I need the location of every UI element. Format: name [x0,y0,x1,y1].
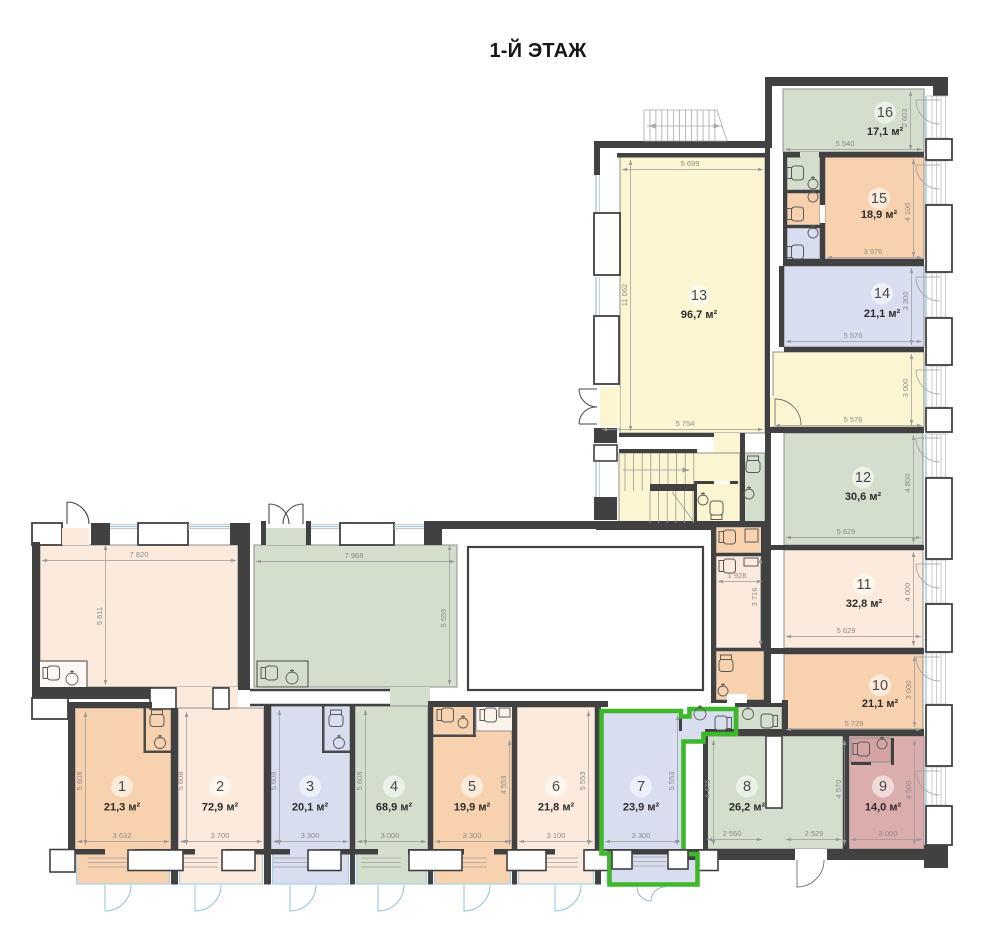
svg-text:1 928: 1 928 [728,571,747,580]
svg-text:3 300: 3 300 [632,831,651,840]
svg-text:5: 5 [468,779,476,795]
svg-text:18,9 м²: 18,9 м² [861,209,898,221]
svg-text:5 540: 5 540 [836,139,855,148]
svg-text:3 000: 3 000 [904,681,913,700]
svg-text:3 976: 3 976 [864,247,883,256]
svg-text:2: 2 [216,779,224,795]
svg-text:8: 8 [743,779,751,795]
svg-text:16: 16 [877,105,893,121]
svg-text:3 716: 3 716 [750,588,759,607]
svg-text:3 632: 3 632 [113,831,132,840]
svg-text:26,2 м²: 26,2 м² [729,802,766,814]
svg-text:5 629: 5 629 [837,626,856,635]
svg-text:4 500: 4 500 [904,781,913,800]
svg-text:7 820: 7 820 [130,550,149,559]
svg-text:3 000: 3 000 [901,379,910,398]
svg-text:5 608: 5 608 [269,772,278,791]
svg-text:4 475: 4 475 [703,780,712,799]
svg-text:11 062: 11 062 [620,284,629,306]
svg-text:14,0 м²: 14,0 м² [865,802,902,814]
svg-text:2 529: 2 529 [805,829,824,838]
svg-text:3 300: 3 300 [901,292,910,311]
svg-text:3 300: 3 300 [463,831,482,840]
svg-text:4 800: 4 800 [903,474,912,493]
svg-text:4 553: 4 553 [499,776,508,795]
svg-text:5 611: 5 611 [95,607,104,625]
svg-text:21,1 м²: 21,1 м² [864,308,901,320]
svg-text:1-Й ЭТАЖ: 1-Й ЭТАЖ [489,38,587,62]
svg-text:6: 6 [552,779,560,795]
svg-text:5 754: 5 754 [676,419,695,428]
svg-text:20,1 м²: 20,1 м² [292,802,329,814]
svg-text:30,6 м²: 30,6 м² [845,491,882,503]
svg-text:1: 1 [118,779,126,795]
svg-text:68,9 м²: 68,9 м² [376,802,413,814]
svg-text:21,8 м²: 21,8 м² [538,802,575,814]
svg-text:96,7 м²: 96,7 м² [681,309,718,321]
svg-text:5 608: 5 608 [75,772,84,791]
svg-text:5 576: 5 576 [844,331,863,340]
svg-text:9: 9 [879,779,887,795]
svg-text:2 603: 2 603 [900,109,909,128]
svg-text:17,1 м²: 17,1 м² [867,126,904,138]
svg-text:2 560: 2 560 [723,829,742,838]
svg-text:3 000: 3 000 [381,831,400,840]
svg-text:13: 13 [691,288,707,304]
svg-text:72,9 м²: 72,9 м² [202,802,239,814]
svg-text:3 100: 3 100 [547,831,566,840]
svg-text:19,9 м²: 19,9 м² [454,802,491,814]
svg-text:3 700: 3 700 [211,831,230,840]
svg-text:5 559: 5 559 [439,609,448,628]
svg-text:11: 11 [856,577,871,593]
svg-text:10: 10 [872,678,888,694]
svg-text:4 000: 4 000 [903,583,912,602]
svg-text:5 699: 5 699 [681,159,700,168]
svg-text:5 629: 5 629 [837,527,856,536]
svg-text:5 608: 5 608 [176,772,185,791]
svg-text:15: 15 [871,191,887,207]
svg-text:3 000: 3 000 [879,829,898,838]
svg-text:3: 3 [306,779,314,795]
svg-text:5 553: 5 553 [578,772,587,791]
svg-text:4: 4 [390,779,398,795]
svg-text:4 100: 4 100 [903,203,912,222]
svg-text:14: 14 [874,286,890,302]
svg-text:5 608: 5 608 [355,772,364,791]
svg-text:7 968: 7 968 [345,551,364,560]
svg-text:7: 7 [637,779,645,795]
svg-text:3 300: 3 300 [301,831,320,840]
svg-text:4 570: 4 570 [834,780,843,799]
svg-text:21,1 м²: 21,1 м² [862,698,899,710]
svg-text:5 553: 5 553 [667,772,676,791]
svg-text:32,8 м²: 32,8 м² [846,598,883,610]
svg-text:12: 12 [855,470,871,486]
svg-text:5 729: 5 729 [845,719,864,728]
svg-text:23,9 м²: 23,9 м² [623,802,660,814]
svg-text:21,3 м²: 21,3 м² [104,802,141,814]
svg-text:5 576: 5 576 [844,415,863,424]
